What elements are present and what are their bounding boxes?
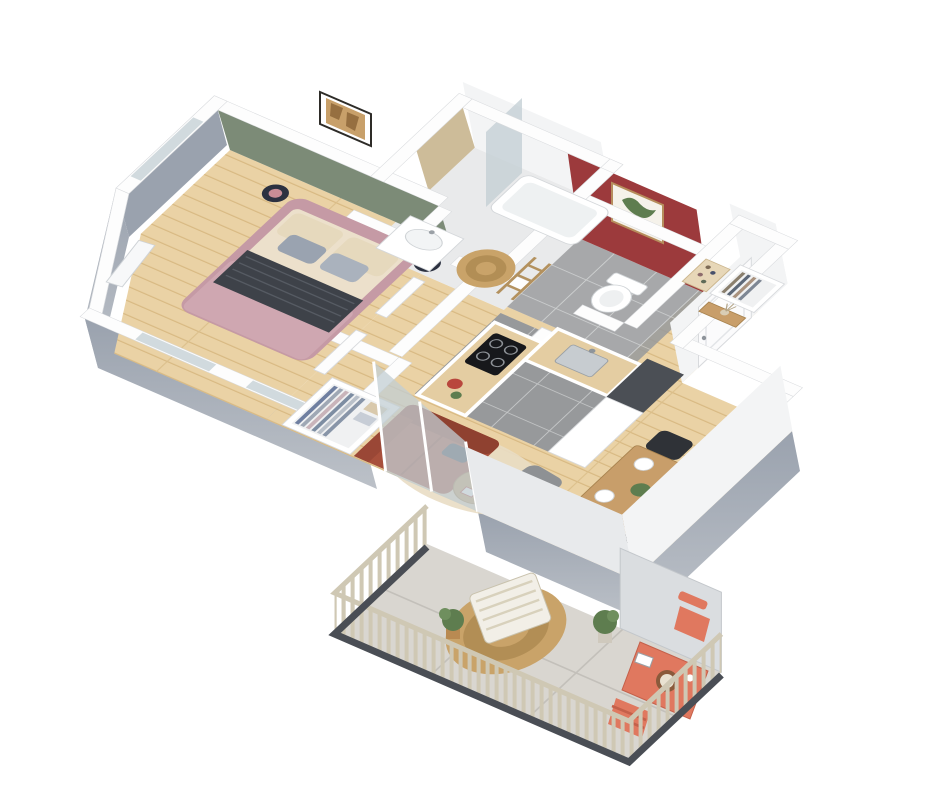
door-handle bbox=[702, 336, 706, 340]
floorplan-render bbox=[0, 0, 941, 800]
bedroom-wall-art bbox=[320, 92, 371, 146]
floorplan-svg bbox=[0, 0, 941, 800]
